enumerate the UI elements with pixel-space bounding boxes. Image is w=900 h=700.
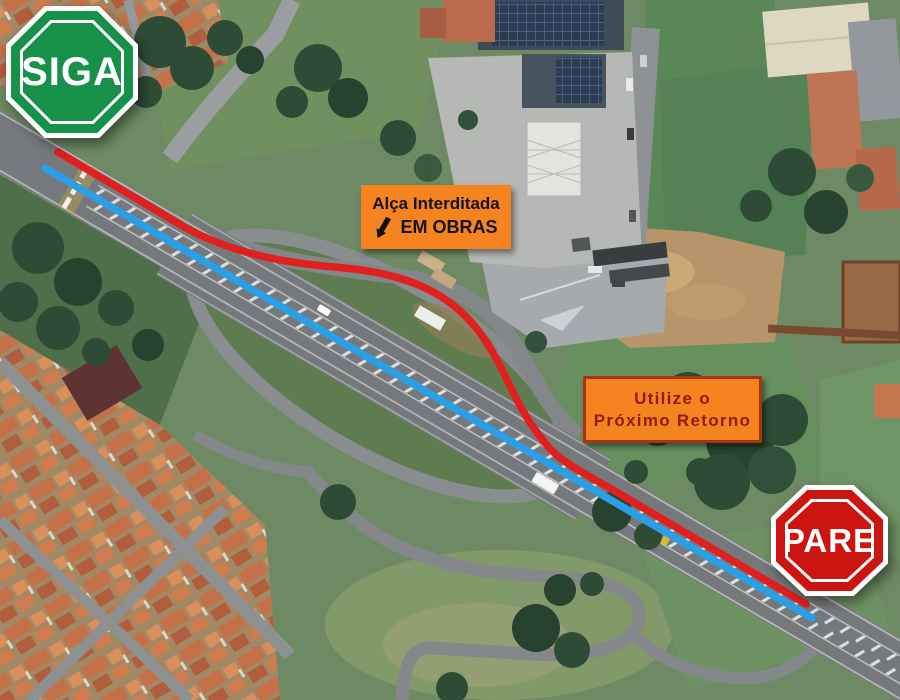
pare-sign: PARE — [771, 485, 888, 596]
closure-banner: Alça Interditada EM OBRAS — [361, 185, 511, 249]
siga-sign-label: SIGA — [6, 6, 138, 138]
detour-banner-line2: Próximo Retorno — [594, 410, 751, 431]
closure-banner-line2: EM OBRAS — [400, 217, 497, 238]
detour-banner: Utilize o Próximo Retorno — [583, 376, 762, 443]
arrow-down-left-icon — [374, 216, 394, 240]
traffic-detour-map: SIGA PARE Alça Interditada EM OBRAS Util… — [0, 0, 900, 700]
pare-sign-label: PARE — [771, 485, 888, 596]
siga-sign: SIGA — [6, 6, 138, 138]
closure-banner-line1: Alça Interditada — [372, 194, 500, 214]
detour-banner-line1: Utilize o — [634, 388, 711, 409]
